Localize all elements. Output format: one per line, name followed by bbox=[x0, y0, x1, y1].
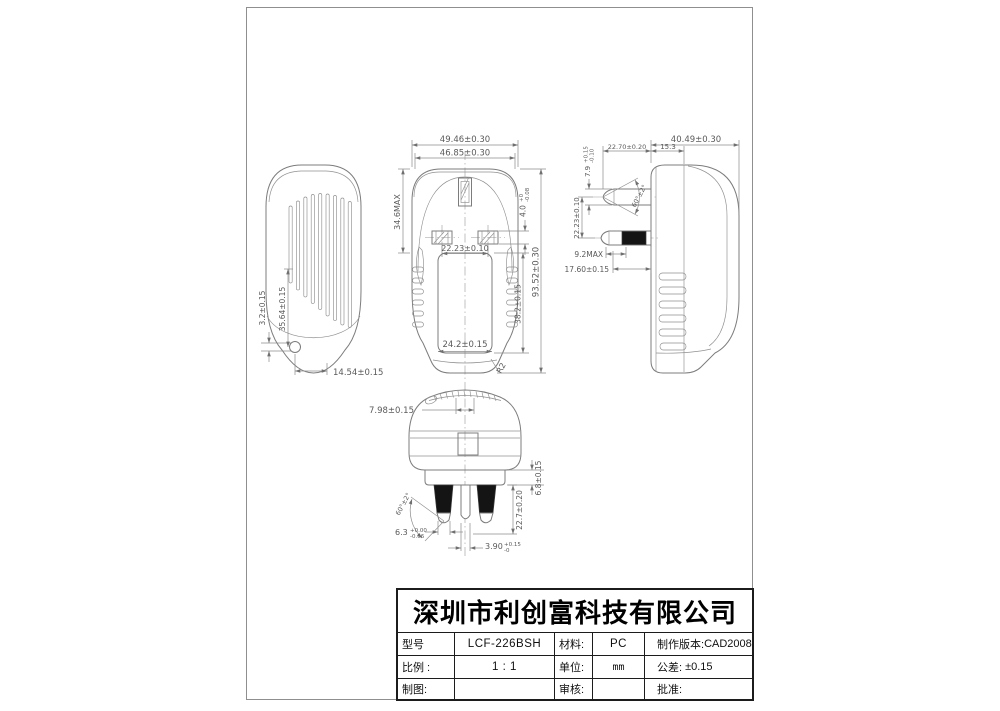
version-value: CAD2008 bbox=[704, 638, 752, 650]
checked-value bbox=[593, 679, 645, 699]
tolerance-label: 公差: bbox=[657, 659, 682, 675]
center-pin bbox=[461, 485, 470, 519]
dim-side-pin-length: 22.70±0.20 bbox=[608, 143, 647, 151]
svg-text:-0.08: -0.08 bbox=[525, 187, 531, 202]
dim-bottom-base-height: 6.8±0.15 bbox=[534, 460, 543, 495]
svg-text:6.3: 6.3 bbox=[395, 528, 408, 537]
svg-text:-0.06: -0.06 bbox=[410, 534, 425, 540]
left-pin bbox=[434, 485, 453, 513]
checked-label: 审核: bbox=[555, 679, 593, 699]
bottom-view-dimensions: 7.98±0.15 6.8±0.15 22.7±0.20 60°±2° bbox=[369, 398, 544, 554]
dim-bottom-pin-angle: 60°±2° bbox=[394, 491, 412, 516]
back-view-dimensions: 3.2±0.15 35.64±0.15 14.54±0.15 bbox=[258, 269, 383, 378]
dim-back-led-offset: 3.2±0.15 bbox=[258, 290, 267, 325]
scale-label: 比例 : bbox=[398, 656, 455, 678]
title-block-row-model: 型号 LCF-226BSH 材料: PC 制作版本:CAD2008 bbox=[398, 633, 752, 656]
dim-back-led-height: 35.64±0.15 bbox=[278, 287, 287, 332]
dim-bottom-pin-length: 22.7±0.20 bbox=[515, 490, 524, 530]
drawing-canvas: 3.2±0.15 35.64±0.15 14.54±0.15 bbox=[0, 0, 1000, 711]
dim-front-inner-width: 46.85±0.30 bbox=[440, 149, 490, 159]
drawn-label: 制图: bbox=[398, 679, 455, 699]
right-pin bbox=[477, 485, 496, 513]
unit-value: mm bbox=[593, 656, 645, 678]
title-block-row-scale: 比例 : 1 : 1 单位: mm 公差:±0.15 bbox=[398, 656, 752, 679]
dim-bottom-top-feature-width: 7.98±0.15 bbox=[369, 406, 414, 416]
back-view-linework bbox=[266, 165, 361, 373]
dim-bottom-center-pin-width: 3.90 +0.15 -0 bbox=[485, 542, 521, 554]
version-cell: 制作版本:CAD2008 bbox=[645, 633, 752, 655]
tolerance-value: ±0.15 bbox=[685, 661, 712, 673]
dim-front-pin-thickness: 4.0 +0 -0.08 bbox=[519, 187, 532, 217]
company-name: 深圳市利创富科技有限公司 bbox=[398, 590, 752, 633]
dim-side-pin-vertical-pitch: 22.23±0.10 bbox=[573, 197, 581, 239]
cord-grip-window bbox=[458, 433, 478, 455]
dim-front-overall-width: 49.46±0.30 bbox=[440, 135, 490, 145]
dim-front-overall-height: 93.52±0.30 bbox=[532, 247, 542, 297]
dim-bottom-side-pin-width: 6.3 +0.00 -0.06 bbox=[395, 528, 427, 540]
svg-text:3.90: 3.90 bbox=[485, 542, 503, 551]
front-view-dimensions: 49.46±0.30 46.85±0.30 34.6MAX 4.0 +0 bbox=[393, 135, 546, 375]
unit-label: 单位: bbox=[555, 656, 593, 678]
dim-front-recess-height: 38.2±0.15 bbox=[514, 284, 523, 324]
svg-text:4.0: 4.0 bbox=[519, 205, 528, 217]
title-block: 深圳市利创富科技有限公司 型号 LCF-226BSH 材料: PC 制作版本:C… bbox=[396, 588, 754, 701]
dim-front-pin-pitch: 22.23±0.10 bbox=[441, 244, 488, 253]
led-hole bbox=[290, 342, 301, 353]
scale-value: 1 : 1 bbox=[455, 656, 555, 678]
version-label: 制作版本: bbox=[657, 636, 704, 652]
approved-cell: 批准: bbox=[645, 679, 752, 699]
pin-insulation bbox=[622, 232, 646, 245]
side-view-dimensions: 40.49±0.30 22.70±0.20 15.3 7.9 +0.15 -0.… bbox=[565, 135, 739, 274]
svg-text:7.9: 7.9 bbox=[584, 166, 592, 177]
material-value: PC bbox=[593, 633, 645, 655]
model-label: 型号 bbox=[398, 633, 455, 655]
dim-back-led-horizontal: 14.54±0.15 bbox=[333, 368, 383, 378]
title-block-row-sign: 制图: 审核: 批准: bbox=[398, 679, 752, 699]
model-value: LCF-226BSH bbox=[455, 633, 555, 655]
drawn-value bbox=[455, 679, 555, 699]
svg-text:-0.10: -0.10 bbox=[590, 148, 596, 163]
dim-front-recess-width: 24.2±0.15 bbox=[443, 340, 488, 350]
dim-side-pin-black-length: 9.2MAX bbox=[574, 250, 603, 259]
svg-text:-0: -0 bbox=[504, 548, 510, 554]
dim-front-top-height: 34.6MAX bbox=[393, 194, 402, 230]
dim-side-face-depth: 15.3 bbox=[660, 143, 676, 151]
tolerance-cell: 公差:±0.15 bbox=[645, 656, 752, 678]
drawing-sheet: 3.2±0.15 35.64±0.15 14.54±0.15 bbox=[246, 7, 753, 700]
approved-label: 批准: bbox=[657, 681, 682, 697]
material-label: 材料: bbox=[555, 633, 593, 655]
dim-side-pin-exposed-length: 17.60±0.15 bbox=[565, 265, 610, 274]
dim-side-earth-pin-width: 7.9 +0.15 -0.10 bbox=[584, 146, 596, 177]
dim-side-overall-depth: 40.49±0.30 bbox=[671, 135, 721, 145]
